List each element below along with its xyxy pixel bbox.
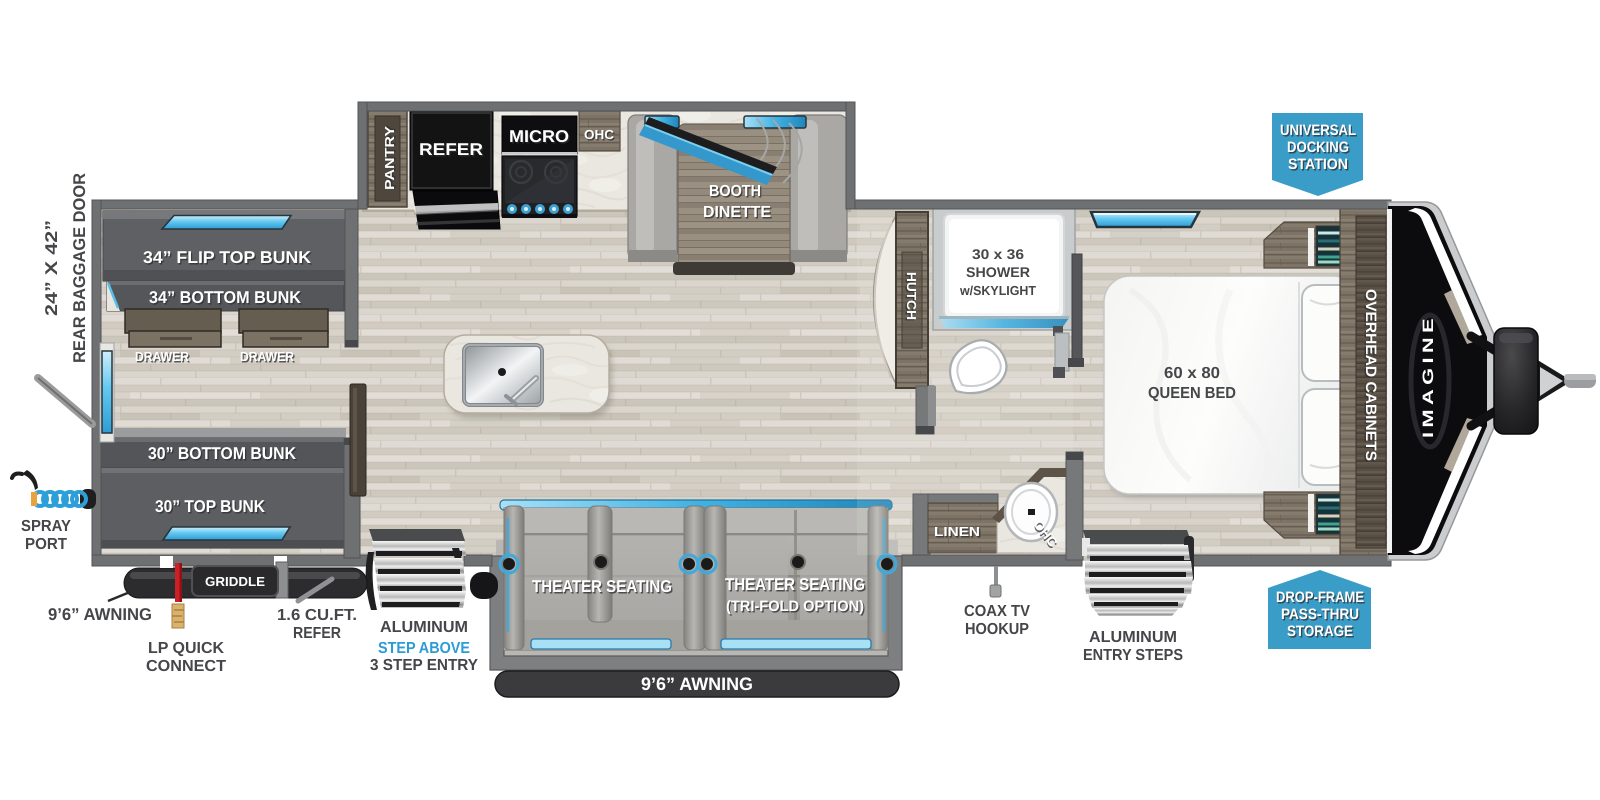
svg-text:1.6 CU.FT.: 1.6 CU.FT. [277, 607, 357, 624]
svg-text:PORT: PORT [25, 536, 67, 553]
svg-text:PANTRY: PANTRY [382, 126, 397, 190]
svg-text:REFER: REFER [419, 140, 483, 159]
svg-text:CONNECT: CONNECT [146, 658, 226, 675]
svg-text:STORAGE: STORAGE [1287, 623, 1353, 640]
svg-text:BOOTH: BOOTH [709, 183, 761, 200]
svg-text:3 STEP ENTRY: 3 STEP ENTRY [370, 657, 478, 674]
svg-text:DROP-FRAME: DROP-FRAME [1276, 589, 1364, 606]
svg-text:w/SKYLIGHT: w/SKYLIGHT [959, 283, 1036, 298]
svg-text:DRAWER: DRAWER [135, 349, 190, 364]
svg-text:COAX TV: COAX TV [964, 603, 1030, 620]
svg-text:DINETTE: DINETTE [703, 204, 771, 221]
svg-text:STATION: STATION [1288, 156, 1348, 173]
svg-text:HOOKUP: HOOKUP [965, 621, 1029, 638]
svg-text:THEATER SEATING: THEATER SEATING [532, 577, 672, 596]
svg-text:34” FLIP TOP BUNK: 34” FLIP TOP BUNK [143, 248, 312, 267]
svg-text:(TRI-FOLD OPTION): (TRI-FOLD OPTION) [726, 598, 864, 615]
svg-text:REFER: REFER [293, 625, 341, 642]
svg-text:SPRAY: SPRAY [21, 518, 71, 535]
svg-text:OHC: OHC [584, 127, 615, 142]
svg-text:60 x 80: 60 x 80 [1164, 365, 1220, 382]
svg-text:STEP ABOVE: STEP ABOVE [378, 640, 470, 657]
svg-text:DOCKING: DOCKING [1287, 139, 1349, 156]
svg-text:REAR BAGGAGE DOOR: REAR BAGGAGE DOOR [70, 173, 89, 363]
svg-text:DRAWER: DRAWER [240, 349, 295, 364]
svg-text:ALUMINUM: ALUMINUM [380, 619, 468, 636]
svg-text:30” BOTTOM BUNK: 30” BOTTOM BUNK [148, 444, 297, 463]
svg-text:24” X 42”: 24” X 42” [42, 220, 61, 316]
svg-text:LINEN: LINEN [934, 524, 980, 539]
svg-text:PASS-THRU: PASS-THRU [1281, 606, 1359, 623]
svg-text:IMAGINE: IMAGINE [1420, 314, 1437, 438]
svg-text:9’6” AWNING: 9’6” AWNING [48, 605, 152, 624]
svg-text:9’6” AWNING: 9’6” AWNING [641, 674, 753, 694]
svg-text:LP QUICK: LP QUICK [148, 640, 224, 657]
svg-text:MICRO: MICRO [509, 127, 569, 146]
svg-text:QUEEN BED: QUEEN BED [1148, 385, 1236, 402]
svg-text:ENTRY STEPS: ENTRY STEPS [1083, 647, 1183, 664]
svg-text:GRIDDLE: GRIDDLE [205, 574, 265, 589]
svg-text:SHOWER: SHOWER [966, 264, 1030, 280]
svg-text:30 x 36: 30 x 36 [972, 246, 1024, 262]
svg-text:HUTCH: HUTCH [904, 272, 919, 320]
svg-text:34” BOTTOM BUNK: 34” BOTTOM BUNK [149, 288, 302, 307]
svg-text:UNIVERSAL: UNIVERSAL [1280, 122, 1356, 139]
svg-text:OVERHEAD CABINETS: OVERHEAD CABINETS [1362, 289, 1379, 461]
svg-text:ALUMINUM: ALUMINUM [1089, 629, 1177, 646]
svg-text:THEATER SEATING: THEATER SEATING [725, 575, 865, 594]
svg-text:30” TOP BUNK: 30” TOP BUNK [155, 497, 266, 516]
